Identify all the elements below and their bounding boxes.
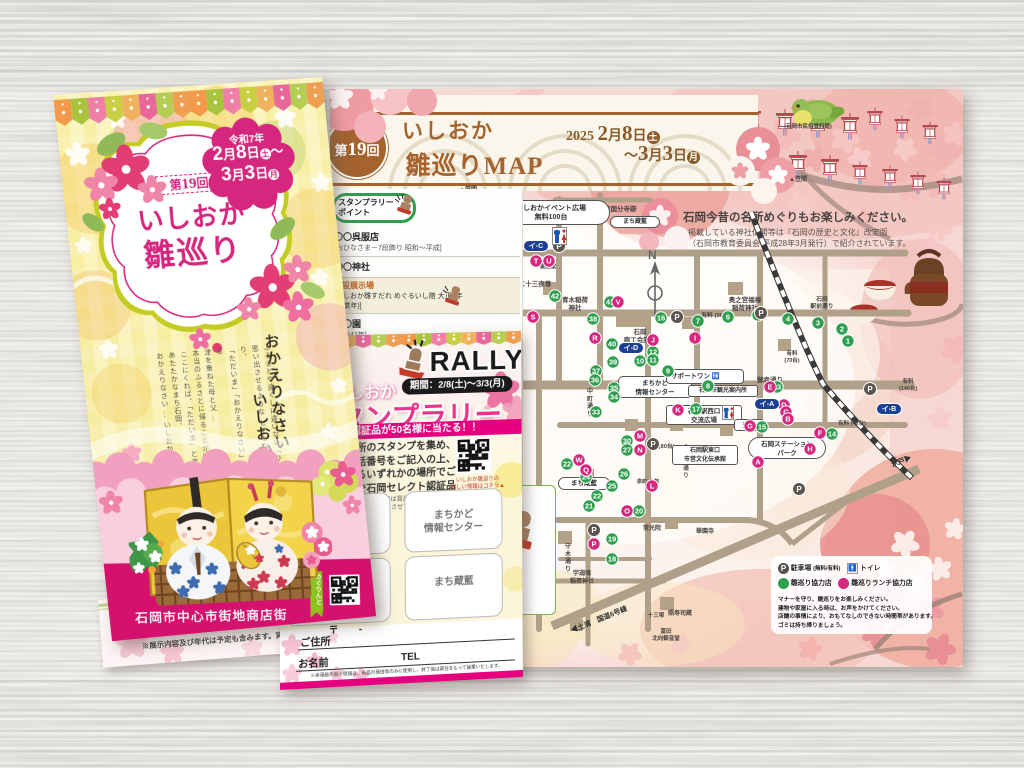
svg-text:33: 33 bbox=[592, 408, 600, 417]
svg-text:38: 38 bbox=[589, 315, 597, 324]
svg-text:20: 20 bbox=[635, 507, 643, 516]
svg-text:7: 7 bbox=[696, 317, 700, 326]
svg-text:26: 26 bbox=[620, 470, 628, 479]
svg-text:40: 40 bbox=[608, 340, 616, 349]
svg-text:U: U bbox=[546, 257, 551, 266]
svg-text:F: F bbox=[818, 429, 823, 438]
svg-text:R: R bbox=[592, 334, 598, 343]
svg-text:P: P bbox=[796, 485, 802, 494]
svg-text:2: 2 bbox=[840, 325, 844, 334]
svg-text:22: 22 bbox=[563, 460, 571, 469]
svg-text:11: 11 bbox=[649, 356, 657, 365]
svg-text:E: E bbox=[767, 383, 772, 392]
svg-text:V: V bbox=[615, 298, 620, 307]
svg-text:15: 15 bbox=[758, 423, 766, 432]
svg-text:1: 1 bbox=[846, 337, 850, 346]
svg-text:6: 6 bbox=[726, 313, 730, 322]
svg-text:39: 39 bbox=[609, 358, 617, 367]
svg-text:P: P bbox=[591, 526, 597, 535]
svg-text:N: N bbox=[637, 446, 642, 455]
svg-text:P: P bbox=[758, 309, 764, 318]
svg-text:P: P bbox=[591, 540, 596, 549]
svg-text:9: 9 bbox=[666, 367, 670, 376]
svg-text:3: 3 bbox=[816, 319, 820, 328]
svg-text:L: L bbox=[650, 482, 655, 491]
svg-text:19: 19 bbox=[608, 535, 616, 544]
svg-text:22: 22 bbox=[593, 492, 601, 501]
svg-text:18: 18 bbox=[608, 555, 616, 564]
svg-text:P: P bbox=[867, 385, 873, 394]
svg-text:34: 34 bbox=[610, 393, 619, 402]
svg-text:42: 42 bbox=[551, 292, 559, 301]
svg-text:H: H bbox=[807, 445, 812, 454]
svg-text:P: P bbox=[674, 313, 680, 322]
svg-text:17: 17 bbox=[692, 405, 700, 414]
svg-text:10: 10 bbox=[636, 357, 644, 366]
svg-text:J: J bbox=[651, 336, 655, 345]
svg-text:8: 8 bbox=[706, 382, 710, 391]
svg-text:S: S bbox=[530, 313, 535, 322]
svg-text:14: 14 bbox=[828, 430, 837, 439]
svg-text:27: 27 bbox=[623, 446, 631, 455]
svg-text:W: W bbox=[575, 456, 583, 465]
svg-text:36: 36 bbox=[591, 376, 599, 385]
svg-text:G: G bbox=[747, 422, 753, 431]
svg-text:M: M bbox=[637, 432, 643, 441]
svg-text:Q: Q bbox=[583, 466, 589, 475]
svg-text:A: A bbox=[755, 458, 761, 467]
svg-text:O: O bbox=[624, 507, 630, 516]
svg-text:P: P bbox=[650, 440, 656, 449]
svg-text:I: I bbox=[694, 334, 696, 343]
svg-text:21: 21 bbox=[585, 502, 593, 511]
svg-text:B: B bbox=[785, 415, 791, 424]
svg-text:25: 25 bbox=[608, 482, 616, 491]
svg-text:16: 16 bbox=[657, 314, 665, 323]
svg-text:T: T bbox=[534, 257, 539, 266]
svg-text:K: K bbox=[675, 406, 681, 415]
